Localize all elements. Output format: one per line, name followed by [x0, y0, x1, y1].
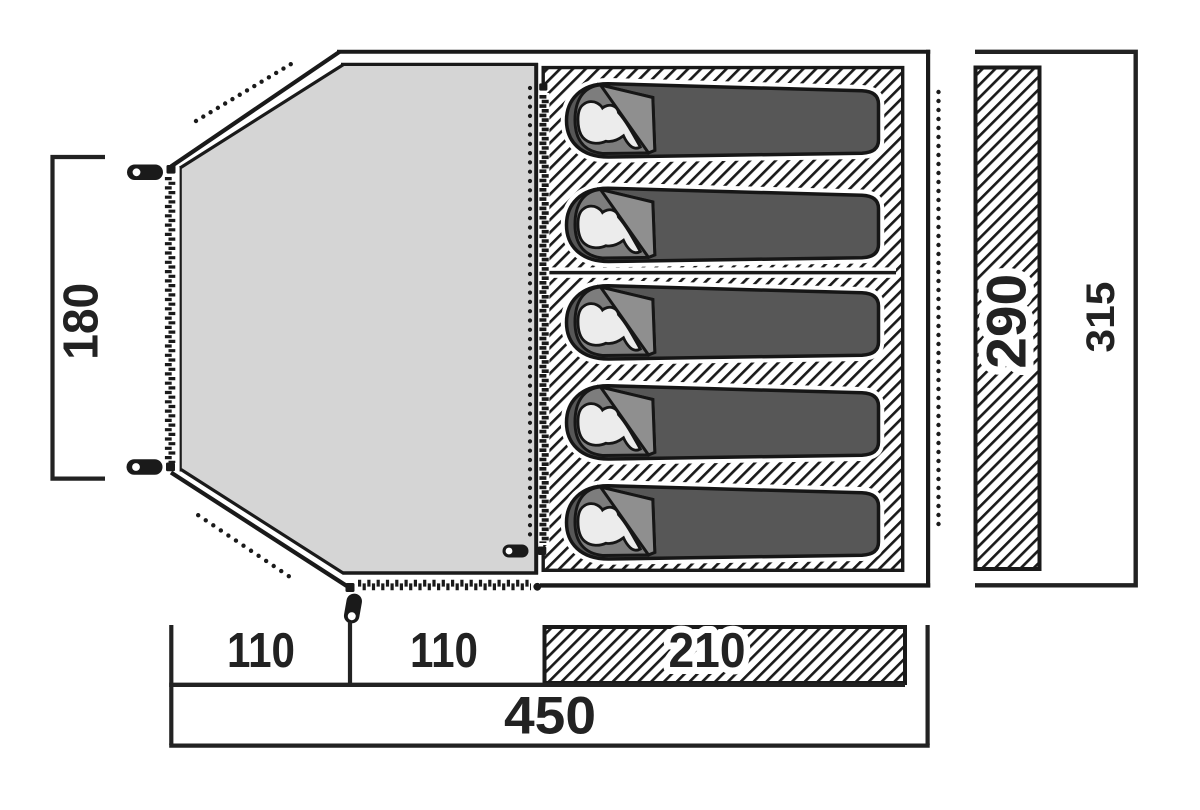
svg-text:110: 110: [410, 624, 478, 678]
svg-text:210: 210: [669, 624, 746, 678]
svg-text:450: 450: [504, 687, 596, 746]
svg-text:180: 180: [55, 283, 109, 360]
svg-text:290: 290: [976, 274, 1038, 369]
svg-text:315: 315: [1079, 282, 1123, 353]
svg-text:110: 110: [227, 624, 295, 678]
